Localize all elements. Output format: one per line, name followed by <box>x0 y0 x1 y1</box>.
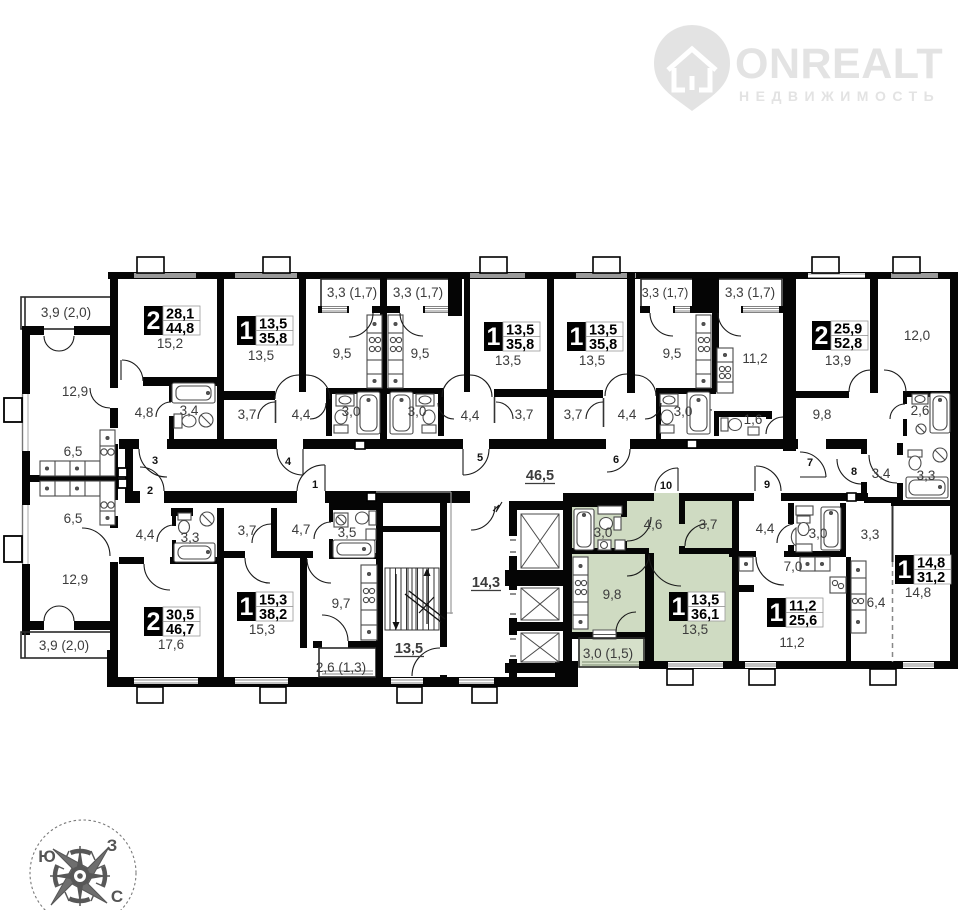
svg-text:3,3 (1,7): 3,3 (1,7) <box>725 285 775 300</box>
svg-text:3,3: 3,3 <box>181 530 200 545</box>
svg-text:7: 7 <box>807 457 813 469</box>
svg-text:3,4: 3,4 <box>180 403 199 418</box>
svg-text:3,7: 3,7 <box>699 517 718 532</box>
svg-text:З: З <box>107 836 118 855</box>
svg-text:52,8: 52,8 <box>834 336 862 352</box>
svg-text:3,0 (1,5): 3,0 (1,5) <box>583 646 633 661</box>
svg-text:7,0: 7,0 <box>784 559 803 574</box>
svg-text:2,6 (1,3): 2,6 (1,3) <box>316 660 366 675</box>
svg-text:12,0: 12,0 <box>904 328 930 343</box>
svg-text:46,7: 46,7 <box>166 622 194 638</box>
svg-text:5: 5 <box>477 452 483 464</box>
svg-text:9,8: 9,8 <box>813 407 832 422</box>
svg-text:3,7: 3,7 <box>238 407 257 422</box>
svg-text:12,9: 12,9 <box>62 572 88 587</box>
svg-text:4,4: 4,4 <box>136 527 155 542</box>
svg-text:3,9 (2,0): 3,9 (2,0) <box>41 305 91 320</box>
svg-text:8: 8 <box>851 466 857 478</box>
svg-text:3,7: 3,7 <box>564 407 583 422</box>
svg-text:14,8: 14,8 <box>905 585 931 600</box>
svg-text:13,5: 13,5 <box>495 353 521 368</box>
svg-text:17,6: 17,6 <box>158 637 184 652</box>
svg-text:6,5: 6,5 <box>64 444 83 459</box>
svg-text:35,8: 35,8 <box>259 331 287 347</box>
svg-text:44,8: 44,8 <box>166 321 194 337</box>
svg-text:4,4: 4,4 <box>292 407 311 422</box>
svg-text:3,3 (1,7): 3,3 (1,7) <box>393 285 443 300</box>
svg-text:9,5: 9,5 <box>333 346 352 361</box>
svg-text:1: 1 <box>240 317 254 345</box>
svg-text:3,3 (1,7): 3,3 (1,7) <box>327 285 377 300</box>
svg-text:С: С <box>111 887 123 906</box>
svg-text:11,2: 11,2 <box>779 635 804 650</box>
svg-text:4,6: 4,6 <box>644 517 663 532</box>
svg-text:15,2: 15,2 <box>157 336 183 351</box>
svg-text:31,2: 31,2 <box>917 570 945 586</box>
svg-text:1,6: 1,6 <box>744 412 763 427</box>
svg-text:3,3 (1,7): 3,3 (1,7) <box>642 286 689 300</box>
svg-text:1: 1 <box>240 593 254 621</box>
svg-text:13,9: 13,9 <box>825 353 851 368</box>
svg-text:3: 3 <box>152 455 158 467</box>
svg-text:3,0: 3,0 <box>594 525 613 540</box>
svg-text:3,3: 3,3 <box>917 468 936 483</box>
svg-text:14,3: 14,3 <box>472 575 500 591</box>
svg-text:2: 2 <box>147 307 161 335</box>
svg-text:25,6: 25,6 <box>789 613 817 629</box>
svg-text:13,5: 13,5 <box>579 353 605 368</box>
svg-text:35,8: 35,8 <box>589 337 617 353</box>
svg-text:4,8: 4,8 <box>135 405 154 420</box>
svg-text:2: 2 <box>147 485 153 497</box>
svg-text:3,9 (2,0): 3,9 (2,0) <box>39 638 89 653</box>
svg-text:3,5: 3,5 <box>338 525 357 540</box>
svg-text:13,5: 13,5 <box>395 641 423 657</box>
svg-text:3,0: 3,0 <box>809 526 828 541</box>
svg-text:9,7: 9,7 <box>332 596 351 611</box>
svg-text:9,8: 9,8 <box>603 587 622 602</box>
svg-text:10: 10 <box>660 480 672 492</box>
svg-text:4,4: 4,4 <box>461 408 480 423</box>
svg-text:ONREALT: ONREALT <box>735 40 943 88</box>
svg-text:1: 1 <box>770 599 784 627</box>
svg-text:6: 6 <box>613 454 619 466</box>
svg-text:1: 1 <box>312 479 318 491</box>
svg-text:6,5: 6,5 <box>64 511 83 526</box>
svg-text:3,7: 3,7 <box>515 407 534 422</box>
svg-text:4,4: 4,4 <box>756 521 775 536</box>
svg-text:2: 2 <box>815 322 829 350</box>
svg-text:1: 1 <box>672 593 686 621</box>
svg-text:Ю: Ю <box>38 847 56 866</box>
svg-text:3,0: 3,0 <box>408 404 427 419</box>
svg-text:3,7: 3,7 <box>238 523 257 538</box>
svg-text:36,1: 36,1 <box>691 607 719 623</box>
svg-text:9: 9 <box>764 479 770 491</box>
svg-text:6,4: 6,4 <box>867 595 886 610</box>
svg-text:4,7: 4,7 <box>292 522 311 537</box>
svg-text:1: 1 <box>487 323 501 351</box>
svg-text:2: 2 <box>147 608 161 636</box>
svg-text:3,3: 3,3 <box>861 527 880 542</box>
svg-text:46,5: 46,5 <box>526 468 554 484</box>
svg-text:13,5: 13,5 <box>248 348 274 363</box>
svg-text:1: 1 <box>570 323 584 351</box>
svg-text:11,2: 11,2 <box>742 351 767 366</box>
svg-text:12,9: 12,9 <box>62 384 88 399</box>
svg-text:НЕДВИЖИМОСТЬ: НЕДВИЖИМОСТЬ <box>739 88 940 104</box>
svg-text:3,0: 3,0 <box>342 404 361 419</box>
svg-text:15,3: 15,3 <box>249 622 275 637</box>
svg-text:3,4: 3,4 <box>872 466 891 481</box>
svg-text:2,6: 2,6 <box>911 403 930 418</box>
svg-text:35,8: 35,8 <box>506 337 534 353</box>
svg-text:4,4: 4,4 <box>618 407 637 422</box>
svg-text:13,5: 13,5 <box>682 622 708 637</box>
svg-text:9,5: 9,5 <box>663 346 682 361</box>
svg-text:1: 1 <box>898 556 912 584</box>
svg-text:9,5: 9,5 <box>411 346 430 361</box>
svg-text:4: 4 <box>285 456 292 468</box>
svg-text:38,2: 38,2 <box>259 607 287 623</box>
svg-text:3,0: 3,0 <box>674 404 693 419</box>
